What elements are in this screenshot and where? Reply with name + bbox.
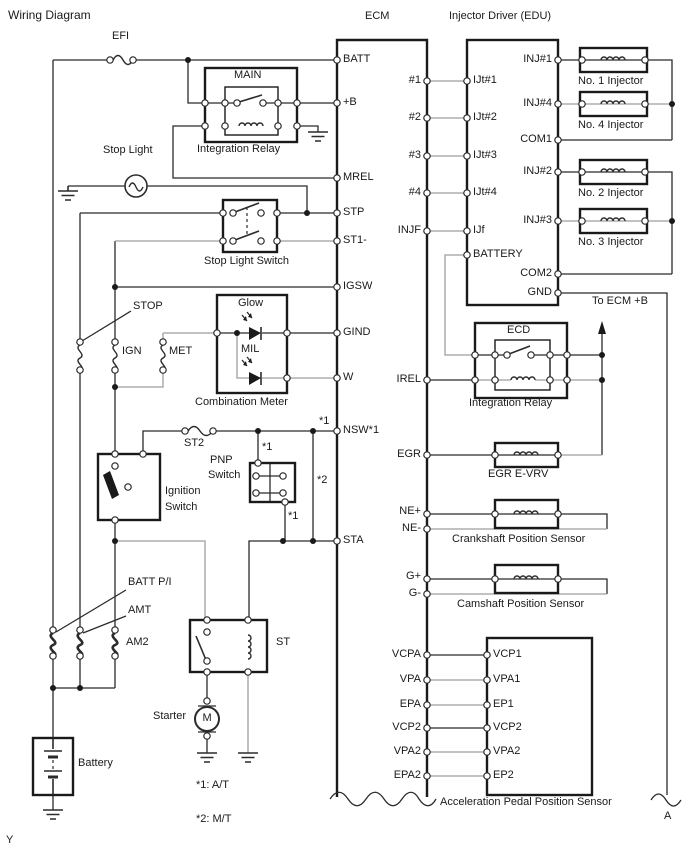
ecm-pin-nsw: NSW*1 [343, 424, 379, 437]
junction-dot [112, 538, 118, 544]
terminal [492, 452, 498, 458]
junction-dot [112, 384, 118, 390]
terminal [472, 377, 478, 383]
terminal [222, 123, 228, 129]
ecm-pin-epa: EPA [400, 698, 421, 711]
app-pin-vpa1: VPA1 [493, 673, 520, 686]
marker-a: A [664, 810, 671, 823]
terminal [280, 490, 286, 496]
terminal [260, 100, 266, 106]
terminal [210, 428, 216, 434]
terminal [464, 228, 470, 234]
terminal [424, 190, 430, 196]
junction-dot [112, 284, 118, 290]
terminal [112, 451, 118, 457]
terminal [528, 352, 534, 358]
egr-evrv-label: EGR E-VRV [488, 468, 548, 481]
terminal [334, 284, 340, 290]
terminal [334, 210, 340, 216]
edu-pin-ijt3: IJt#3 [473, 149, 497, 162]
edu-title: Injector Driver (EDU) [449, 10, 551, 23]
ecm-pin-sta: STA [343, 534, 364, 547]
terminal [204, 733, 210, 739]
terminal [112, 339, 118, 345]
ecm-pin-4: #4 [409, 186, 421, 199]
terminal [424, 677, 430, 683]
terminal [230, 210, 236, 216]
terminal [484, 677, 490, 683]
terminal [222, 100, 228, 106]
terminal [77, 627, 83, 633]
terminal [555, 452, 561, 458]
terminal [424, 591, 430, 597]
ign-fuse-label: IGN [122, 345, 142, 358]
terminal [112, 463, 118, 469]
edu-pin-ijt4: IJt#4 [473, 186, 497, 199]
main-relay-inner-box [225, 87, 278, 135]
pnp-switch-label-2: Switch [208, 469, 240, 482]
ecm-pin-vcp2: VCP2 [392, 721, 421, 734]
terminal [245, 617, 251, 623]
note-mt: *2: M/T [196, 813, 231, 826]
am2-fuse-label: AM2 [126, 636, 149, 649]
junction-dot [310, 538, 316, 544]
ecm-pin-epa2: EPA2 [394, 769, 421, 782]
terminal [334, 428, 340, 434]
star1-nsw: *1 [319, 415, 329, 428]
stop-light-switch-label: Stop Light Switch [204, 255, 289, 268]
terminal [334, 100, 340, 106]
terminal [424, 153, 430, 159]
pnp-switch-label-1: PNP [210, 454, 233, 467]
st-relay-label: ST [276, 636, 290, 649]
terminal [464, 190, 470, 196]
ground-starter-icon [197, 753, 217, 762]
terminal [424, 511, 430, 517]
page-title: Wiring Diagram [8, 8, 91, 22]
app-sensor-label: Acceleration Pedal Position Sensor [440, 796, 612, 809]
junction-dot [669, 218, 675, 224]
edu-pin-inj3: INJ#3 [523, 214, 552, 227]
junction-dot [234, 330, 240, 336]
to-ecm-b-label: To ECM +B [592, 295, 648, 308]
terminal [112, 653, 118, 659]
ecm-pin-st1: ST1- [343, 234, 367, 247]
ecm-title: ECM [365, 10, 389, 23]
terminal [275, 100, 281, 106]
main-relay-label: MAIN [234, 69, 262, 82]
terminal [424, 115, 430, 121]
terminal [642, 169, 648, 175]
marker-y: Y [6, 834, 13, 847]
terminal [77, 339, 83, 345]
ground-main-relay-icon [308, 132, 328, 141]
integration-relay2-label: Integration Relay [469, 397, 552, 410]
ecm-pin-gind: GIND [343, 326, 371, 339]
terminal [424, 773, 430, 779]
terminal [555, 218, 561, 224]
terminal [555, 169, 561, 175]
terminal [334, 375, 340, 381]
junction-dot [304, 210, 310, 216]
terminal [424, 526, 430, 532]
st-coil-icon [248, 635, 251, 659]
ecm-pin-stp: STP [343, 206, 364, 219]
terminal [234, 100, 240, 106]
terminal [274, 210, 280, 216]
terminal [492, 511, 498, 517]
terminal [547, 377, 553, 383]
camshaft-sensor-label: Camshaft Position Sensor [457, 598, 584, 611]
terminal [492, 576, 498, 582]
terminal [294, 100, 300, 106]
terminal [112, 517, 118, 523]
injector4-label: No. 4 Injector [578, 119, 643, 132]
terminal [424, 725, 430, 731]
combination-meter-label: Combination Meter [195, 396, 288, 409]
terminal [204, 669, 210, 675]
ground-battery-icon [43, 810, 63, 819]
mil-label: MIL [241, 343, 259, 356]
crankshaft-sensor-label: Crankshaft Position Sensor [452, 533, 585, 546]
edu-pin-inj4: INJ#4 [523, 97, 552, 110]
terminal [77, 653, 83, 659]
terminal [555, 101, 561, 107]
ground-st-coil-icon [238, 753, 258, 762]
star2-bypass: *2 [317, 474, 327, 487]
terminal [214, 330, 220, 336]
edu-pin-battery: BATTERY [473, 248, 523, 261]
ecm-pin-vcpa: VCPA [392, 648, 421, 661]
ecm-bottom-break [330, 792, 436, 806]
terminal [579, 218, 585, 224]
ignition-key-icon [103, 471, 119, 499]
junction-dot [255, 428, 261, 434]
ecm-pin-3: #3 [409, 149, 421, 162]
terminal [204, 658, 210, 664]
ecm-pin-vpa: VPA [400, 673, 421, 686]
terminal [642, 101, 648, 107]
ecd-label: ECD [507, 324, 530, 337]
terminal [334, 175, 340, 181]
terminal [284, 330, 290, 336]
terminal [140, 451, 146, 457]
terminal [564, 352, 570, 358]
terminal [555, 271, 561, 277]
junction-dot [599, 377, 605, 383]
app-pin-vcp2: VCP2 [493, 721, 522, 734]
terminal [245, 669, 251, 675]
terminal [424, 652, 430, 658]
terminal [284, 375, 290, 381]
terminal [504, 352, 510, 358]
terminal [202, 100, 208, 106]
terminal [555, 290, 561, 296]
ecd-coil-icon [511, 377, 535, 380]
edu-pin-inj1: INJ#1 [523, 53, 552, 66]
terminal [258, 238, 264, 244]
amt-label-leader [83, 616, 126, 633]
junction-dot [185, 57, 191, 63]
terminal [112, 367, 118, 373]
efi-fuse-label: EFI [112, 30, 129, 43]
terminal [77, 367, 83, 373]
glow-label: Glow [238, 297, 263, 310]
terminal [484, 702, 490, 708]
stop-label-leader [82, 311, 131, 341]
terminal [204, 629, 210, 635]
starter-label: Starter [153, 710, 186, 723]
terminal [579, 101, 585, 107]
terminal [424, 78, 430, 84]
terminal [424, 749, 430, 755]
ecm-pin-2: #2 [409, 111, 421, 124]
ecm-pin-g-plus: G+ [406, 570, 421, 583]
terminal [334, 57, 340, 63]
junction-dot [50, 685, 56, 691]
terminal [642, 218, 648, 224]
ignition-switch-label-2: Switch [165, 501, 197, 514]
terminal [220, 210, 226, 216]
ecm-pin-injf: INJF [398, 224, 421, 237]
continuation-break-a [651, 794, 681, 806]
ecm-pin-g-minus: G- [409, 587, 421, 600]
terminal [50, 653, 56, 659]
st-relay-switch-blade [196, 636, 206, 660]
amt-fuse-label: AMT [128, 604, 151, 617]
terminal [258, 210, 264, 216]
terminal [112, 627, 118, 633]
ecm-pin-mrel: MREL [343, 171, 374, 184]
terminal [230, 238, 236, 244]
terminal [424, 452, 430, 458]
terminal [492, 377, 498, 383]
edu-pin-gnd: GND [528, 286, 552, 299]
terminal [182, 428, 188, 434]
stop-light-label: Stop Light [103, 144, 153, 157]
ecm-pin-plus-b: +B [343, 96, 357, 109]
edu-pin-com2: COM2 [520, 267, 552, 280]
terminal [294, 123, 300, 129]
app-pin-ep1: EP1 [493, 698, 514, 711]
terminal [547, 352, 553, 358]
mil-led-icon [249, 372, 261, 385]
battery-label: Battery [78, 757, 113, 770]
terminal [50, 627, 56, 633]
ecm-pin-irel: IREL [397, 373, 421, 386]
terminal [555, 576, 561, 582]
junction-dot [77, 685, 83, 691]
junction-dot [599, 352, 605, 358]
terminal [484, 725, 490, 731]
edu-pin-inj2: INJ#2 [523, 165, 552, 178]
injector1-label: No. 1 Injector [578, 75, 643, 88]
note-at: *1: A/T [196, 779, 229, 792]
terminal [253, 490, 259, 496]
star1-pnp-top: *1 [262, 441, 272, 454]
terminal [334, 238, 340, 244]
to-ecm-b-arrow-icon [598, 321, 606, 334]
ignition-switch-label-1: Ignition [165, 485, 200, 498]
terminal [555, 511, 561, 517]
terminal [125, 484, 131, 490]
terminal [464, 78, 470, 84]
edu-pin-ijt2: IJt#2 [473, 111, 497, 124]
terminal [334, 538, 340, 544]
terminal [484, 749, 490, 755]
ecm-pin-ne-plus: NE+ [399, 505, 421, 518]
terminal [275, 123, 281, 129]
terminal [255, 460, 261, 466]
terminal [579, 169, 585, 175]
star1-pnp-bottom: *1 [288, 510, 298, 523]
terminal [424, 702, 430, 708]
terminal [204, 698, 210, 704]
terminal [424, 228, 430, 234]
terminal [204, 617, 210, 623]
terminal [107, 57, 113, 63]
terminal [160, 339, 166, 345]
ecd-switch-blade [509, 346, 530, 354]
ecm-pin-egr: EGR [397, 448, 421, 461]
ecm-pin-w: W [343, 371, 353, 384]
terminal [642, 57, 648, 63]
terminal [253, 473, 259, 479]
ecm-pin-batt: BATT [343, 53, 370, 66]
injector3-label: No. 3 Injector [578, 236, 643, 249]
terminal [555, 57, 561, 63]
app-pin-ep2: EP2 [493, 769, 514, 782]
terminal [579, 57, 585, 63]
terminal [424, 576, 430, 582]
stop-fuse-label: STOP [133, 300, 163, 313]
terminal [472, 352, 478, 358]
terminal [280, 473, 286, 479]
ecm-pin-ne-minus: NE- [402, 522, 421, 535]
st-relay-box [190, 620, 267, 672]
junction-dot [280, 538, 286, 544]
ecm-pin-vpa2: VPA2 [394, 745, 421, 758]
junction-dot [669, 101, 675, 107]
terminal [464, 115, 470, 121]
terminal [464, 252, 470, 258]
glow-led-icon [249, 327, 261, 340]
main-coil-icon [239, 123, 263, 126]
terminal [202, 123, 208, 129]
main-switch-blade [239, 95, 262, 102]
terminal [130, 57, 136, 63]
ecm-pin-igsw: IGSW [343, 280, 372, 293]
integration-relay-label: Integration Relay [197, 143, 280, 156]
batt-pi-fuse-label: BATT P/I [128, 576, 172, 589]
edu-pin-ijf: IJf [473, 224, 485, 237]
terminal [334, 330, 340, 336]
starter-m-label: M [203, 712, 212, 725]
terminal [484, 652, 490, 658]
terminal [282, 499, 288, 505]
terminal [564, 377, 570, 383]
ecm-pin-1: #1 [409, 74, 421, 87]
edu-pin-com1: COM1 [520, 133, 552, 146]
terminal [160, 367, 166, 373]
edu-pin-ijt1: IJt#1 [473, 74, 497, 87]
terminal [555, 137, 561, 143]
terminal [492, 352, 498, 358]
injector2-label: No. 2 Injector [578, 187, 643, 200]
terminal [220, 238, 226, 244]
app-pin-vpa2: VPA2 [493, 745, 520, 758]
terminal [484, 773, 490, 779]
wiring-diagram-canvas: Wiring Diagram ECM Injector Driver (EDU)… [0, 0, 690, 855]
st2-fuse-label: ST2 [184, 437, 204, 450]
terminal [274, 238, 280, 244]
terminal [464, 153, 470, 159]
terminal [424, 377, 430, 383]
met-fuse-label: MET [169, 345, 192, 358]
junction-dot [310, 428, 316, 434]
app-pin-vcp1: VCP1 [493, 648, 522, 661]
ground-stop-light-icon [58, 186, 78, 200]
ecd-relay-inner-box [495, 340, 550, 390]
